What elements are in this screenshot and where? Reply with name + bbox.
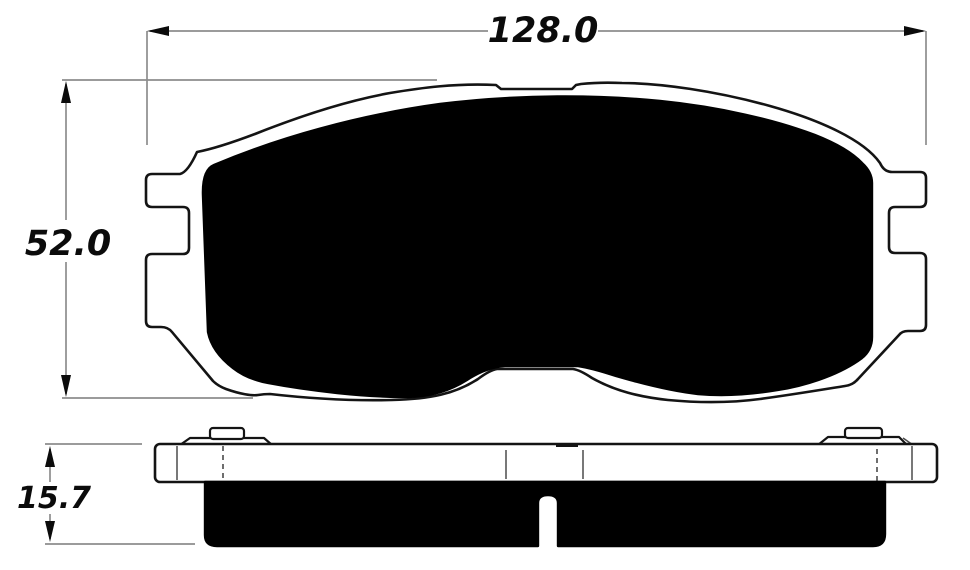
width-dimension-label: 128.0 (488, 11, 599, 51)
thickness-arrow-down (45, 521, 55, 542)
height-dimension-label: 52.0 (25, 224, 111, 264)
width-arrow-right (904, 26, 926, 36)
side-right-clip-tab (845, 428, 882, 438)
brake-pad-technical-drawing: 128.0 52.0 15.7 (0, 0, 970, 570)
drawing-svg: 128.0 52.0 15.7 (0, 0, 970, 570)
height-arrow-up (61, 81, 71, 103)
side-backing-plate (155, 444, 937, 482)
width-arrow-left (147, 26, 169, 36)
front-friction-pad (203, 96, 872, 397)
side-friction-block (205, 482, 885, 546)
side-left-clip-tab (210, 428, 244, 439)
front-view (146, 83, 926, 402)
height-arrow-down (61, 375, 71, 397)
thickness-arrow-up (45, 446, 55, 467)
side-view (155, 428, 937, 546)
thickness-dimension-label: 15.7 (17, 481, 91, 516)
